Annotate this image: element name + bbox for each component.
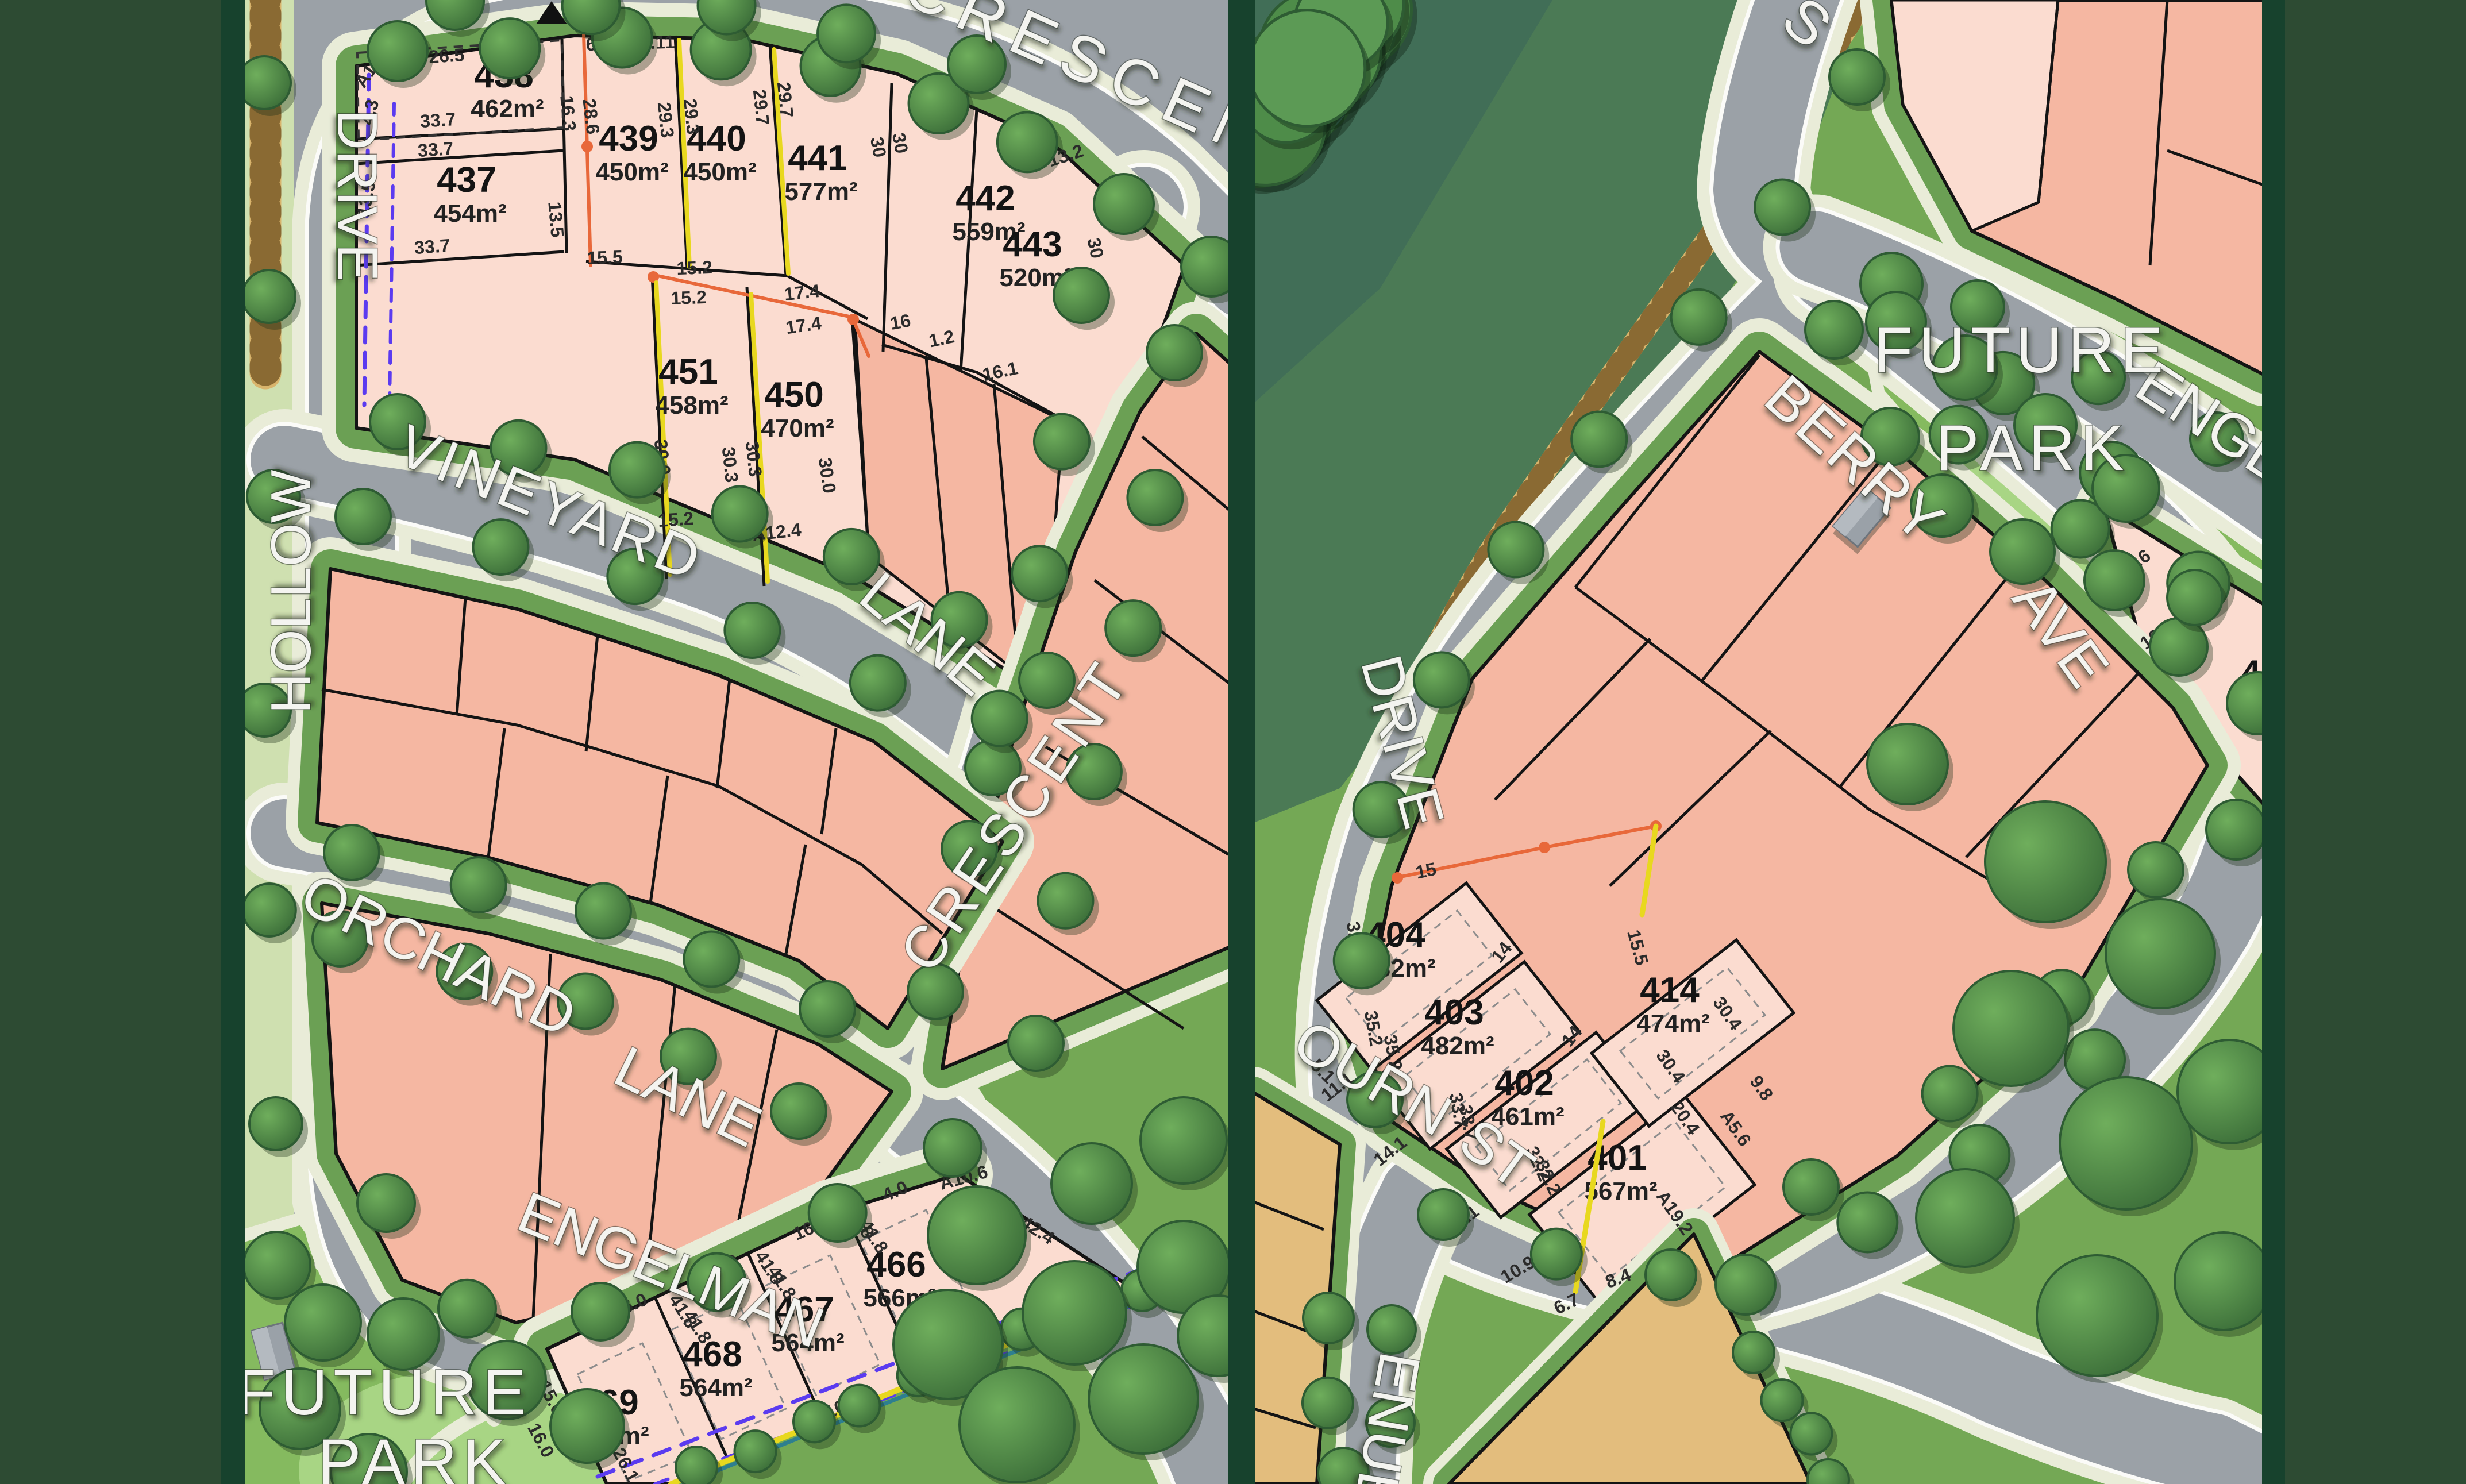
tree-icon	[800, 981, 855, 1036]
tree-icon	[1038, 873, 1093, 928]
tree-icon	[1762, 1379, 1803, 1421]
tree-icon	[960, 1367, 1074, 1482]
dim-16-29: 16	[888, 310, 912, 334]
frame-band-2	[1228, 0, 1255, 1484]
street-hollow: HOLLOW	[259, 469, 322, 714]
tree-icon	[1790, 1413, 1832, 1454]
dim-15-0: 15	[1414, 858, 1438, 883]
dim-30.3-33: 30.3	[718, 446, 742, 484]
tree-icon	[357, 1174, 415, 1232]
future-park-label-2: PARK	[318, 1426, 512, 1484]
dim-16.3-7: 16.3	[556, 94, 580, 132]
tree-icon	[712, 487, 768, 542]
tree-icon	[1105, 600, 1161, 656]
dim-29.7-17: 29.7	[773, 81, 797, 119]
dim-15.2-26: 15.2	[671, 287, 707, 309]
lot-440-area: 450m²	[683, 158, 756, 186]
lot-443-number: 443	[1003, 225, 1062, 264]
dim-15.5-24: 15.5	[587, 246, 623, 268]
dim-29.3-14: 29.3	[654, 101, 678, 139]
future-park-right-1: FUTURE	[1874, 314, 2169, 386]
left-panel: 438462m²437454m²439450m²440450m²441577m²…	[236, 0, 1331, 1484]
tree-icon	[249, 1097, 302, 1150]
tree-icon	[1147, 325, 1202, 380]
tree-icon	[684, 932, 739, 987]
future-park-right-2: PARK	[1936, 412, 2130, 484]
tree-icon	[1034, 414, 1089, 469]
tree-icon	[1334, 933, 1389, 988]
tree-icon	[824, 529, 879, 584]
dim-13.5-8: 13.5	[544, 201, 568, 238]
lot-439-number: 439	[599, 119, 658, 159]
tree-icon	[972, 691, 1027, 746]
tree-icon	[480, 18, 540, 78]
tree-icon	[771, 1084, 826, 1139]
tree-icon	[1783, 1159, 1839, 1215]
tree-icon	[1805, 301, 1863, 359]
tree-icon	[550, 1389, 624, 1463]
tree-icon	[734, 1431, 776, 1472]
lot-439-area: 450m²	[595, 158, 668, 186]
lot-451-number: 451	[658, 352, 718, 392]
tree-icon	[243, 884, 296, 936]
tree-icon	[838, 1385, 880, 1427]
tree-icon	[1646, 1250, 1696, 1300]
tree-icon	[336, 489, 391, 544]
tree-icon	[1089, 1344, 1198, 1454]
dim-33.7-4: 33.7	[419, 109, 457, 132]
tree-icon	[1054, 268, 1109, 323]
tree-icon	[451, 857, 506, 912]
tree-icon	[1303, 1293, 1354, 1343]
tree-icon	[1051, 1143, 1132, 1224]
dim-33.7-5: 33.7	[417, 138, 454, 161]
tree-icon	[1140, 1097, 1227, 1184]
dim-30.3-34: 30.3	[742, 440, 766, 478]
tree-icon	[572, 1283, 629, 1340]
lot-451-area: 458m²	[655, 391, 728, 419]
street-drive: DRIVE	[326, 109, 389, 282]
tree-icon	[928, 1186, 1026, 1284]
tree-icon	[473, 519, 528, 575]
tree-icon	[818, 5, 875, 62]
lot-403-number: 403	[1424, 993, 1484, 1032]
lot-437-number: 437	[437, 160, 496, 200]
tree-icon	[1716, 1255, 1775, 1315]
frame-band-4	[2285, 0, 2466, 1484]
tree-icon	[285, 1285, 361, 1360]
dim-33.7-6: 33.7	[414, 235, 451, 258]
tree-icon	[793, 1401, 835, 1442]
lot-403-area: 482m²	[1421, 1032, 1494, 1060]
lot-468-area: 564m²	[679, 1374, 752, 1402]
future-park-label-1: FUTURE	[236, 1356, 531, 1428]
frame-band-0	[0, 0, 221, 1484]
dim-29.7-16: 29.7	[749, 88, 773, 126]
dim-30-19: 30	[888, 131, 912, 155]
dim-30-18: 30	[866, 135, 891, 159]
tree-icon	[438, 1280, 496, 1337]
lot-441-number: 441	[788, 138, 847, 178]
lot-438-area: 462m²	[471, 95, 544, 123]
tree-icon	[2060, 1077, 2192, 1209]
tree-icon	[1733, 1332, 1774, 1373]
tree-icon	[1867, 724, 1948, 804]
tree-icon	[1922, 1066, 1978, 1121]
tree-icon	[368, 21, 427, 81]
tree-icon	[610, 442, 665, 498]
tree-icon	[924, 1119, 981, 1177]
tree-icon	[1367, 1305, 1416, 1354]
tree-icon	[1829, 49, 1885, 105]
tree-icon	[1023, 1261, 1126, 1364]
forest-tree	[1249, 10, 1365, 126]
tree-icon	[2084, 550, 2144, 610]
tree-icon	[1008, 1016, 1064, 1071]
tree-icon	[850, 656, 906, 711]
dim-17.4-27: 17.4	[783, 280, 821, 304]
tree-icon	[1127, 470, 1182, 525]
tree-icon	[576, 884, 631, 939]
tree-icon	[1671, 290, 1727, 345]
dim-26.5-0: 26.5	[428, 44, 465, 67]
frame-band-3	[2262, 0, 2285, 1484]
tree-icon	[1531, 1229, 1582, 1279]
tree-icon	[2106, 899, 2215, 1008]
lot-437-area: 454m²	[433, 199, 506, 228]
tree-icon	[1953, 971, 2068, 1086]
lot-402-number: 402	[1494, 1063, 1554, 1103]
lot-441-area: 577m²	[784, 178, 857, 206]
dim-29.3-15: 29.3	[680, 98, 704, 136]
frame-band-1	[221, 0, 245, 1484]
tree-icon	[244, 1232, 310, 1298]
tree-icon	[2128, 842, 2183, 897]
tree-icon	[1571, 411, 1627, 467]
lot-414-number: 414	[1640, 970, 1700, 1010]
util-orange-dots-right-0	[1392, 872, 1403, 884]
tree-icon	[1837, 1192, 1897, 1252]
masterplan-map: 438462m²437454m²439450m²440450m²441577m²…	[0, 0, 2466, 1484]
dim-15.2-25: 15.2	[676, 257, 712, 279]
dim-30-23: 30	[1083, 236, 1108, 260]
tree-icon	[809, 1184, 866, 1242]
tree-icon	[997, 112, 1057, 172]
tree-icon	[2175, 1232, 2272, 1330]
masterplan-svg: 438462m²437454m²439450m²440450m²441577m²…	[0, 0, 2466, 1484]
tree-icon	[2167, 570, 2222, 625]
lot-468-number: 468	[683, 1335, 742, 1374]
tree-icon	[238, 56, 291, 109]
tree-icon	[242, 270, 295, 323]
tree-icon	[1488, 522, 1543, 577]
tree-icon	[1303, 1378, 1353, 1428]
tree-icon	[1418, 1189, 1469, 1240]
tree-icon	[1012, 546, 1067, 601]
tree-icon	[676, 1447, 717, 1484]
util-orange-dots-right-1	[1539, 842, 1550, 853]
util-orange-dots-2	[847, 314, 859, 325]
right-panel: 404532m²403482m²402461m²401567m²414474m²…	[1204, 0, 2310, 1484]
lot-442-number: 442	[955, 179, 1015, 218]
tree-icon	[1094, 174, 1154, 234]
tree-icon	[2206, 800, 2266, 859]
util-orange-dots-0	[581, 141, 593, 152]
tree-icon	[1755, 180, 1810, 235]
tree-icon	[2037, 1255, 2157, 1376]
lot-450-area: 470m²	[761, 414, 834, 442]
tree-icon	[1985, 801, 2106, 922]
tree-icon	[725, 603, 780, 658]
lot-414-area: 474m²	[1636, 1009, 1709, 1038]
tree-icon	[1916, 1169, 2014, 1267]
lot-450-number: 450	[764, 375, 823, 415]
dim-28.6-9: 28.6	[579, 98, 603, 136]
